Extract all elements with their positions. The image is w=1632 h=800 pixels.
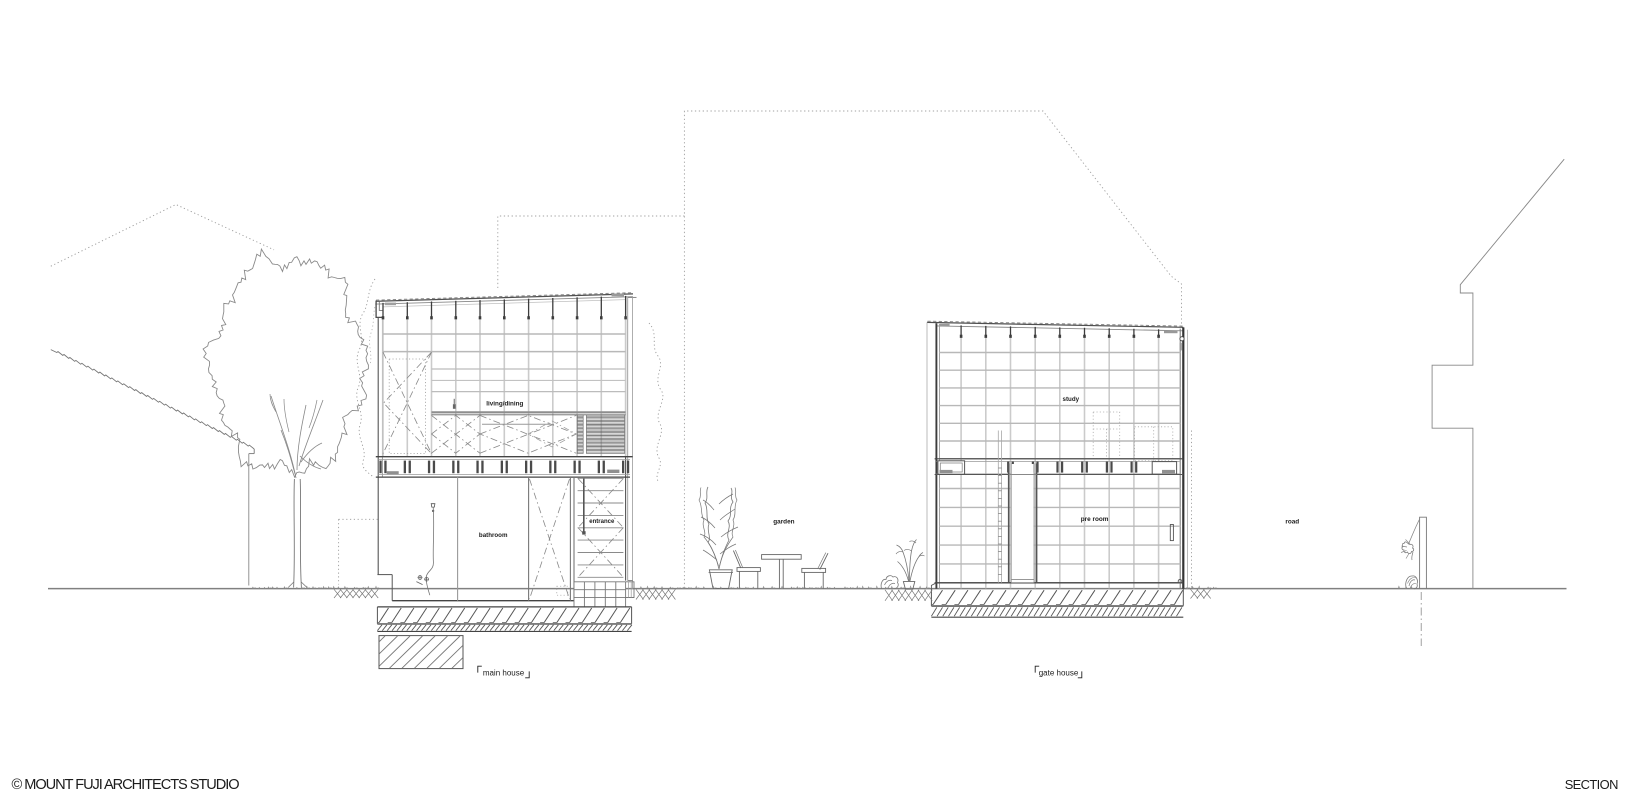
svg-text:SECTION: SECTION (1565, 777, 1618, 792)
svg-text:© MOUNT FUJI ARCHITECTS STUDIO: © MOUNT FUJI ARCHITECTS STUDIO (12, 777, 240, 793)
svg-text:bathroom: bathroom (479, 532, 508, 539)
svg-text:main house: main house (483, 668, 525, 677)
svg-text:living/dining: living/dining (486, 400, 523, 407)
svg-text:garden: garden (773, 518, 794, 525)
svg-text:study: study (1063, 396, 1080, 403)
svg-text:road: road (1285, 518, 1299, 525)
svg-text:pre room: pre room (1081, 516, 1109, 523)
svg-text:gate house: gate house (1039, 668, 1079, 677)
svg-text:entrance: entrance (589, 519, 615, 525)
